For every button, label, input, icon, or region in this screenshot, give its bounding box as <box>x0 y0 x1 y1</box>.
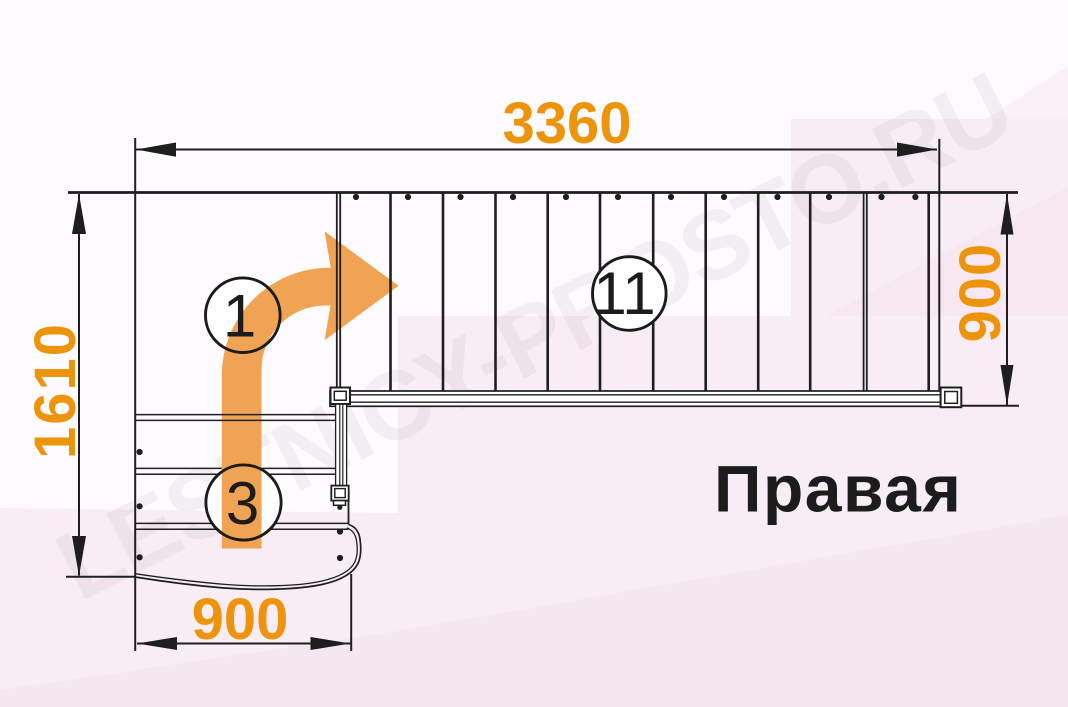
svg-text:Правая: Правая <box>714 452 962 526</box>
svg-text:1610: 1610 <box>23 322 88 459</box>
svg-text:3360: 3360 <box>502 91 631 156</box>
svg-text:11: 11 <box>593 260 655 327</box>
svg-text:3: 3 <box>226 470 259 537</box>
svg-text:900: 900 <box>192 587 289 652</box>
svg-text:1: 1 <box>223 283 256 350</box>
svg-text:900: 900 <box>948 243 1013 343</box>
